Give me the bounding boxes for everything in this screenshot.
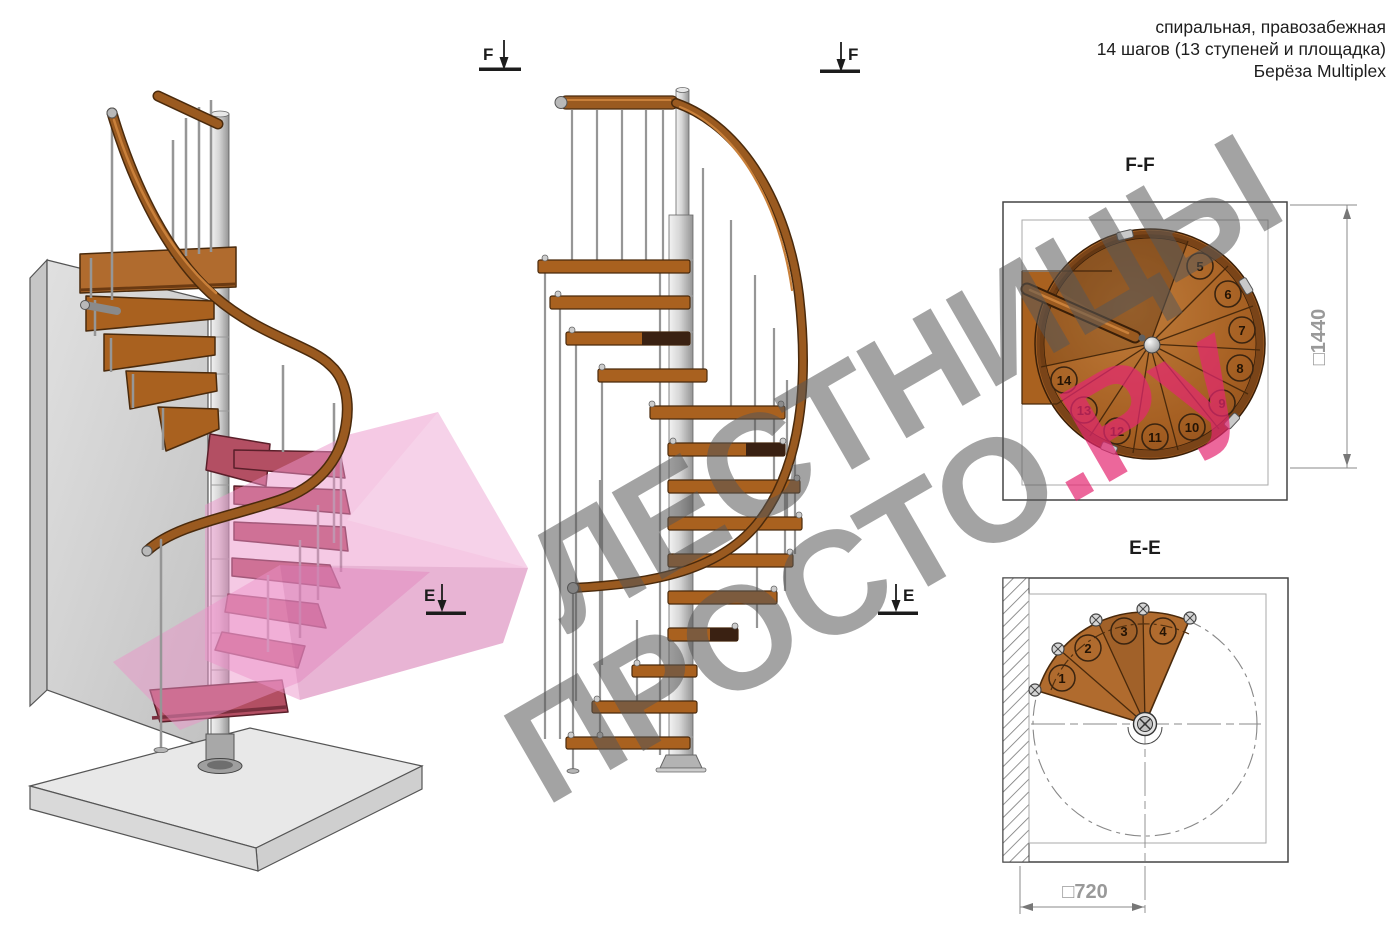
drawing-sheet: F-F [0,0,1400,940]
section-arrow-icon [837,42,846,72]
svg-text:8: 8 [1236,361,1243,376]
section-marker-f-right: F [820,42,860,73]
ee-dimension-label: □720 [1062,881,1107,903]
section-marker-f-left: F [479,40,521,71]
spec-header: спиральная, правозабежная 14 шагов (13 с… [1097,16,1386,82]
svg-text:F: F [483,45,493,64]
svg-text:10: 10 [1185,420,1199,435]
section-marker-e-right: E [878,584,918,615]
section-arrow-icon [892,584,901,612]
svg-text:13: 13 [1077,403,1091,418]
svg-text:5: 5 [1196,259,1203,274]
spec-line-type: спиральная, правозабежная [1097,16,1386,38]
svg-text:9: 9 [1218,396,1225,411]
svg-text:11: 11 [1148,430,1162,445]
svg-text:2: 2 [1084,641,1091,656]
svg-text:1: 1 [1058,671,1065,686]
svg-text:14: 14 [1057,373,1072,388]
svg-text:4: 4 [1159,624,1167,639]
svg-text:E: E [424,586,435,605]
svg-text:3: 3 [1120,624,1127,639]
elevation-view [538,88,803,774]
svg-text:E: E [903,586,914,605]
svg-text:F: F [848,45,858,64]
ff-title: F-F [1125,155,1155,176]
section-arrow-icon [500,40,509,70]
ee-plan-view: E-E [1003,538,1288,914]
spec-line-material: Берёза Multiplex [1097,60,1386,82]
ff-dimension-label: □1440 [1308,309,1330,366]
ee-wall-hatch [1003,578,1029,862]
baluster-foot [567,769,579,774]
svg-text:6: 6 [1224,287,1231,302]
staircase-drawing: F-F [0,0,1400,940]
ff-plan-view: F-F [1003,155,1357,500]
spec-line-steps: 14 шагов (13 ступеней и площадка) [1097,38,1386,60]
ee-title: E-E [1129,538,1161,559]
svg-text:7: 7 [1238,323,1245,338]
svg-text:12: 12 [1110,424,1124,439]
